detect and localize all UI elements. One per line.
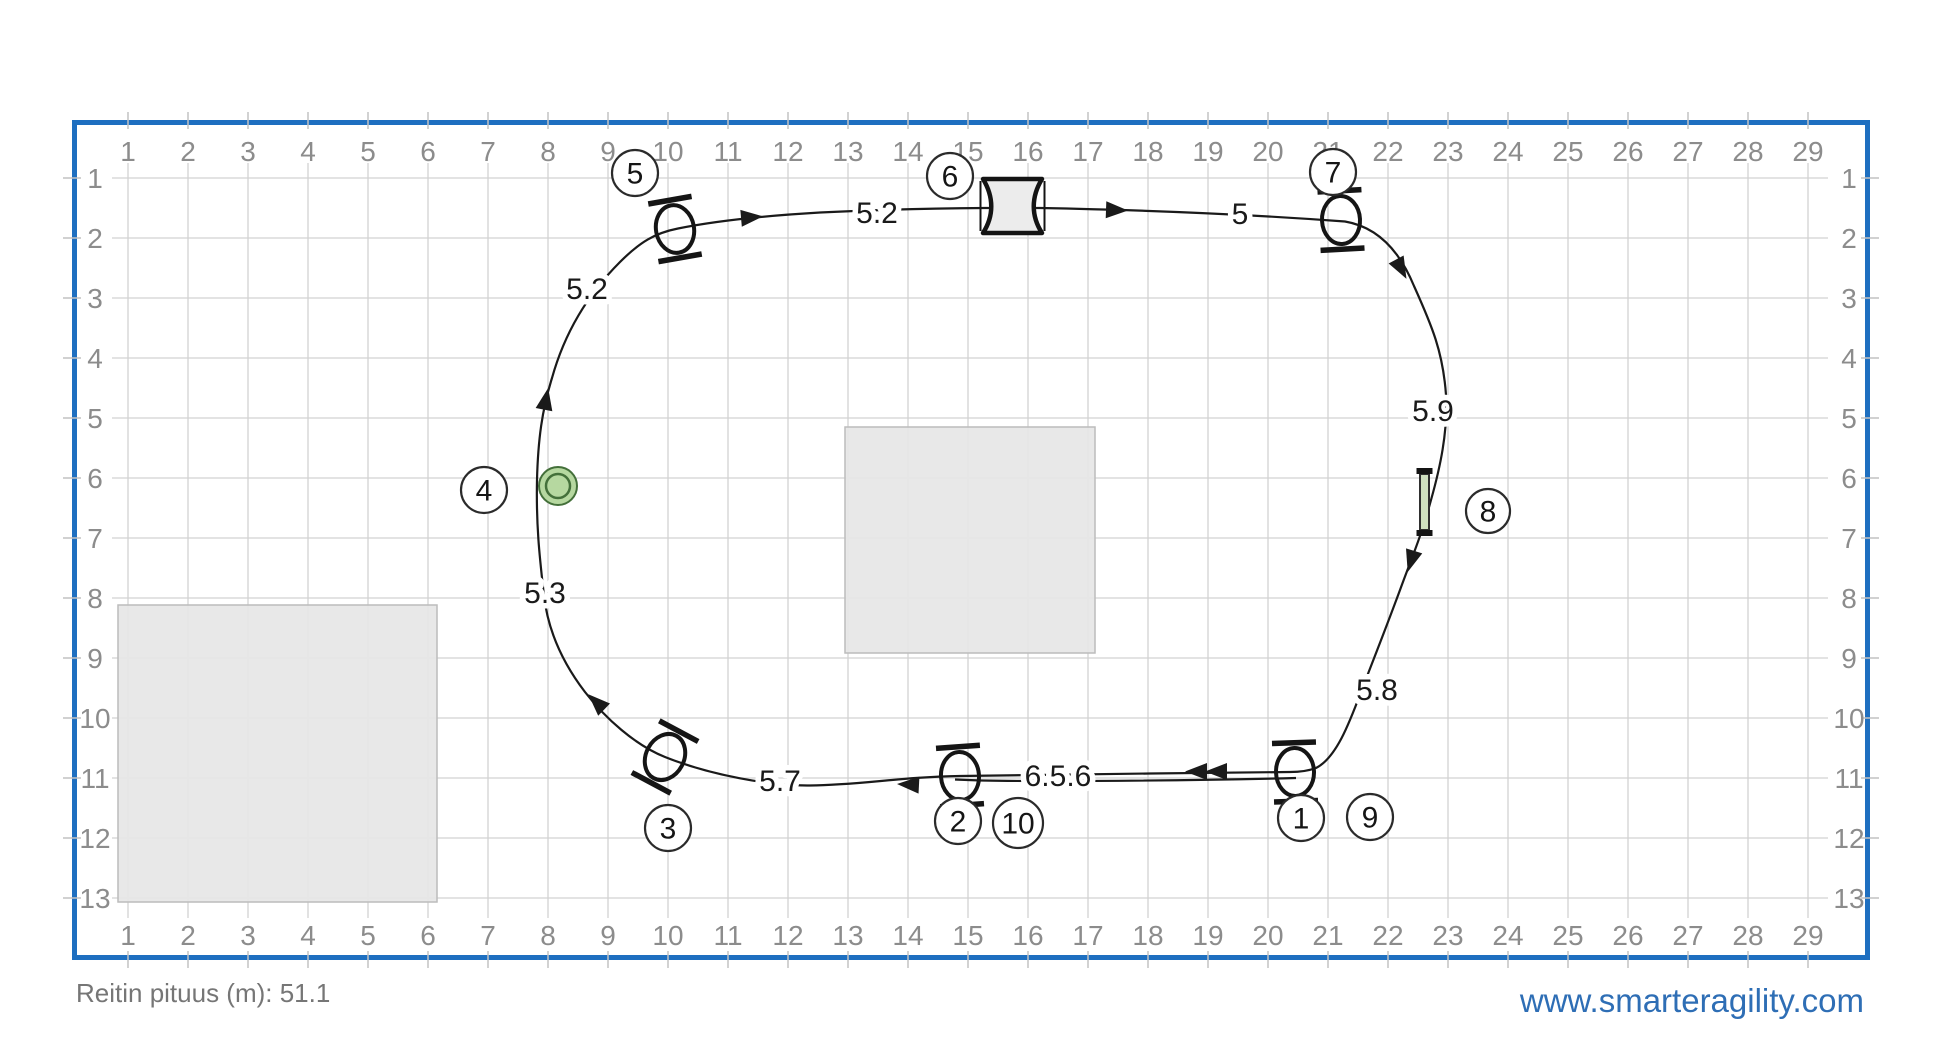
direction-arrow-icon	[740, 208, 763, 227]
axis-label-bottom: 11	[713, 920, 742, 951]
axis-label-bottom: 10	[652, 920, 683, 951]
axis-label-bottom: 18	[1132, 920, 1163, 951]
axis-label-left: 3	[87, 283, 103, 314]
axis-label-left: 10	[79, 703, 110, 734]
axis-label-bottom: 1	[120, 920, 136, 951]
axis-label-bottom: 5	[360, 920, 376, 951]
svg-text:2: 2	[950, 806, 967, 839]
axis-label-bottom: 26	[1612, 920, 1643, 951]
axis-label-right: 1	[1841, 163, 1857, 194]
axis-label-top: 29	[1792, 136, 1823, 167]
axis-label-bottom: 6	[420, 920, 436, 951]
axis-label-top: 23	[1432, 136, 1463, 167]
axis-label-top: 11	[713, 136, 742, 167]
obstacle-number-10: 10	[993, 798, 1043, 848]
axis-label-top: 25	[1552, 136, 1583, 167]
axis-label-bottom: 20	[1252, 920, 1283, 951]
obstacle-number-2: 2	[935, 798, 981, 844]
svg-text:1: 1	[1293, 803, 1310, 836]
axis-label-top: 19	[1192, 136, 1223, 167]
axis-label-bottom: 17	[1072, 920, 1103, 951]
distance-label: 5.3	[524, 577, 566, 610]
obstacle-number-6: 6	[927, 153, 973, 199]
axis-label-bottom: 21	[1312, 920, 1343, 951]
axis-label-left: 8	[87, 583, 103, 614]
svg-text:3: 3	[660, 813, 677, 846]
axis-label-bottom: 9	[600, 920, 616, 951]
axis-label-top: 3	[240, 136, 256, 167]
obstacle-number-4: 4	[461, 467, 507, 513]
axis-label-top: 13	[832, 136, 863, 167]
axis-label-right: 12	[1833, 823, 1864, 854]
axis-label-left: 2	[87, 223, 103, 254]
axis-label-bottom: 2	[180, 920, 196, 951]
obstacle-number-5: 5	[612, 150, 658, 196]
axis-label-bottom: 13	[832, 920, 863, 951]
axis-label-left: 13	[79, 883, 110, 914]
axis-label-left: 11	[80, 763, 109, 794]
direction-arrow-icon	[1106, 201, 1129, 219]
axis-label-bottom: 25	[1552, 920, 1583, 951]
distance-label: 6.5.6	[1025, 760, 1092, 793]
axis-label-top: 2	[180, 136, 196, 167]
obstacle-number-8: 8	[1466, 489, 1510, 533]
svg-text:6: 6	[942, 161, 959, 194]
distance-label: 5.7	[759, 765, 801, 798]
axis-label-top: 26	[1612, 136, 1643, 167]
obstacle-number-9: 9	[1347, 794, 1393, 840]
marker-obstacle	[539, 467, 577, 505]
axis-label-bottom: 14	[892, 920, 923, 951]
axis-label-bottom: 23	[1432, 920, 1463, 951]
tunnel-obstacle	[981, 179, 1045, 233]
website-link[interactable]: www.smarteragility.com	[1520, 982, 1864, 1020]
svg-text:8: 8	[1480, 496, 1497, 529]
axis-label-left: 5	[87, 403, 103, 434]
axis-label-bottom: 8	[540, 920, 556, 951]
svg-text:4: 4	[476, 475, 493, 508]
distance-label: 5.9	[1412, 395, 1454, 428]
axis-label-right: 8	[1841, 583, 1857, 614]
axis-label-right: 6	[1841, 463, 1857, 494]
svg-text:9: 9	[1362, 802, 1379, 835]
axis-label-right: 2	[1841, 223, 1857, 254]
axis-label-right: 10	[1833, 703, 1864, 734]
axis-label-top: 6	[420, 136, 436, 167]
axis-label-top: 1	[120, 136, 136, 167]
distance-label: 5.2	[856, 197, 898, 230]
axis-label-bottom: 24	[1492, 920, 1523, 951]
direction-arrow-icon	[1400, 548, 1423, 574]
axis-label-left: 1	[87, 163, 103, 194]
axis-label-right: 11	[1834, 763, 1863, 794]
axis-label-right: 13	[1833, 883, 1864, 914]
distance-label: 5	[1232, 198, 1249, 231]
axis-label-bottom: 15	[952, 920, 983, 951]
axis-label-bottom: 22	[1372, 920, 1403, 951]
axis-label-left: 6	[87, 463, 103, 494]
axis-label-bottom: 28	[1732, 920, 1763, 951]
axis-label-top: 5	[360, 136, 376, 167]
axis-label-bottom: 4	[300, 920, 316, 951]
obstacle-number-1: 1	[1278, 795, 1324, 841]
axis-label-bottom: 12	[772, 920, 803, 951]
axis-label-left: 4	[87, 343, 103, 374]
agility-course-page: 1122334455667788991010111112121313141415…	[0, 0, 1938, 1059]
axis-label-top: 24	[1492, 136, 1523, 167]
axis-label-right: 3	[1841, 283, 1857, 314]
svg-text:5: 5	[627, 158, 644, 191]
axis-label-top: 28	[1732, 136, 1763, 167]
course-map: 1122334455667788991010111112121313141415…	[0, 0, 1938, 1059]
axis-label-bottom: 7	[480, 920, 496, 951]
distance-label: 5.2	[566, 273, 608, 306]
axis-label-top: 4	[300, 136, 316, 167]
axis-label-top: 20	[1252, 136, 1283, 167]
axis-label-bottom: 16	[1012, 920, 1043, 951]
obstacle-number-3: 3	[645, 805, 691, 851]
axis-label-bottom: 19	[1192, 920, 1223, 951]
axis-label-top: 10	[652, 136, 683, 167]
axis-label-top: 27	[1672, 136, 1703, 167]
svg-text:10: 10	[1001, 808, 1034, 841]
axis-label-top: 8	[540, 136, 556, 167]
axis-label-left: 7	[87, 523, 103, 554]
svg-text:7: 7	[1325, 157, 1342, 190]
axis-label-right: 5	[1841, 403, 1857, 434]
excluded-area	[845, 427, 1095, 653]
axis-label-top: 12	[772, 136, 803, 167]
axis-label-bottom: 29	[1792, 920, 1823, 951]
axis-label-right: 7	[1841, 523, 1857, 554]
excluded-area	[118, 605, 437, 902]
course-length-text: Reitin pituus (m): 51.1	[76, 978, 330, 1009]
axis-label-right: 9	[1841, 643, 1857, 674]
direction-arrow-icon	[536, 386, 557, 411]
axis-label-left: 12	[79, 823, 110, 854]
obstacle-number-7: 7	[1310, 149, 1356, 195]
distance-label: 5.8	[1356, 674, 1398, 707]
axis-label-top: 7	[480, 136, 496, 167]
axis-label-top: 16	[1012, 136, 1043, 167]
axis-label-top: 17	[1072, 136, 1103, 167]
axis-label-left: 9	[87, 643, 103, 674]
axis-label-top: 18	[1132, 136, 1163, 167]
axis-label-right: 4	[1841, 343, 1857, 374]
axis-label-bottom: 3	[240, 920, 256, 951]
axis-label-top: 14	[892, 136, 923, 167]
axis-label-top: 22	[1372, 136, 1403, 167]
axis-label-bottom: 27	[1672, 920, 1703, 951]
